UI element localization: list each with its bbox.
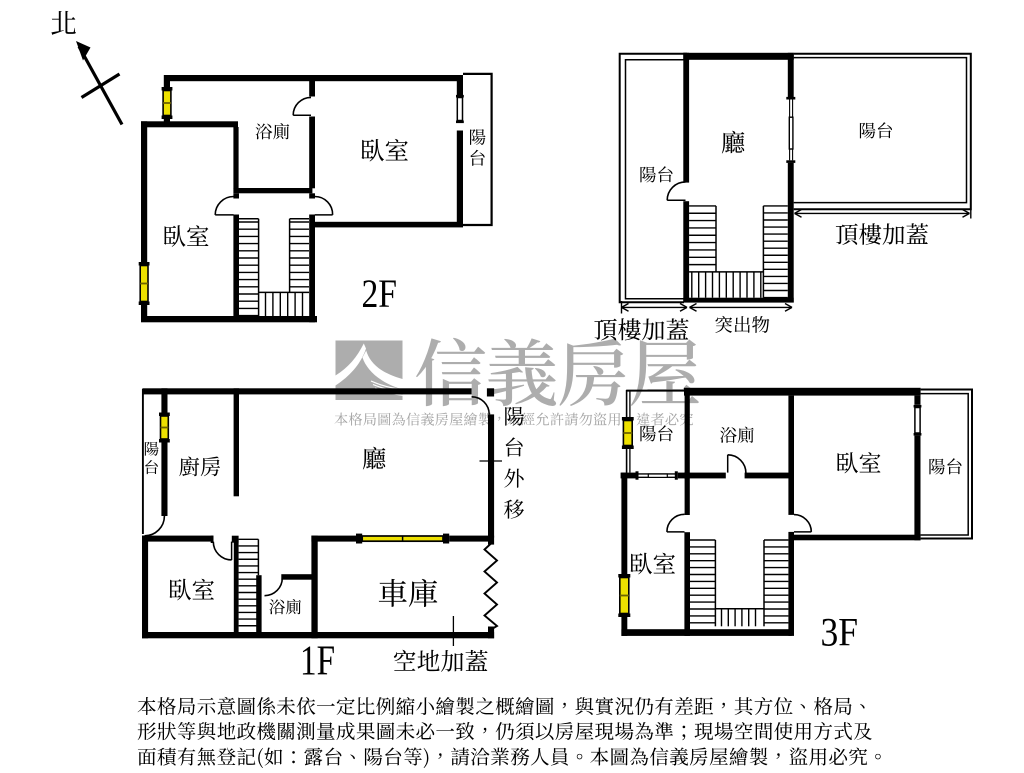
svg-text:車庫: 車庫 (378, 570, 439, 614)
svg-text:移: 移 (504, 494, 525, 524)
svg-text:外: 外 (504, 463, 525, 493)
svg-text:1F: 1F (300, 639, 335, 685)
svg-text:北: 北 (50, 2, 77, 41)
svg-text:空地加蓋: 空地加蓋 (393, 642, 489, 677)
svg-text:台: 台 (144, 456, 160, 478)
svg-text:突出物: 突出物 (715, 312, 771, 338)
svg-text:臥室: 臥室 (163, 218, 210, 252)
svg-text:台: 台 (504, 432, 525, 462)
svg-text:浴廁: 浴廁 (269, 594, 302, 618)
svg-text:廳: 廳 (721, 125, 746, 160)
svg-text:2F: 2F (362, 271, 398, 316)
svg-text:陽台: 陽台 (639, 162, 674, 187)
svg-text:陽台: 陽台 (859, 118, 894, 143)
svg-text:台: 台 (469, 146, 487, 171)
svg-text:陽台: 陽台 (639, 421, 674, 446)
svg-text:頂樓加蓋: 頂樓加蓋 (835, 216, 929, 250)
svg-text:面積有無登記(如：露台、陽台等)，請洽業務人員。本圖為信義房: 面積有無登記(如：露台、陽台等)，請洽業務人員。本圖為信義房屋繪製，盜用必究。 (137, 741, 888, 768)
svg-text:頂樓加蓋: 頂樓加蓋 (594, 311, 690, 346)
svg-text:浴廁: 浴廁 (720, 423, 755, 448)
svg-text:臥室: 臥室 (629, 546, 676, 580)
svg-text:臥室: 臥室 (168, 572, 215, 606)
svg-text:3F: 3F (821, 610, 859, 655)
svg-text:廚房: 廚房 (179, 451, 222, 482)
svg-text:臥室: 臥室 (360, 133, 409, 168)
svg-text:陽台: 陽台 (928, 454, 963, 479)
svg-text:浴廁: 浴廁 (255, 119, 290, 144)
svg-text:廳: 廳 (362, 441, 387, 476)
svg-text:陽: 陽 (504, 401, 525, 431)
svg-text:臥室: 臥室 (836, 446, 882, 479)
